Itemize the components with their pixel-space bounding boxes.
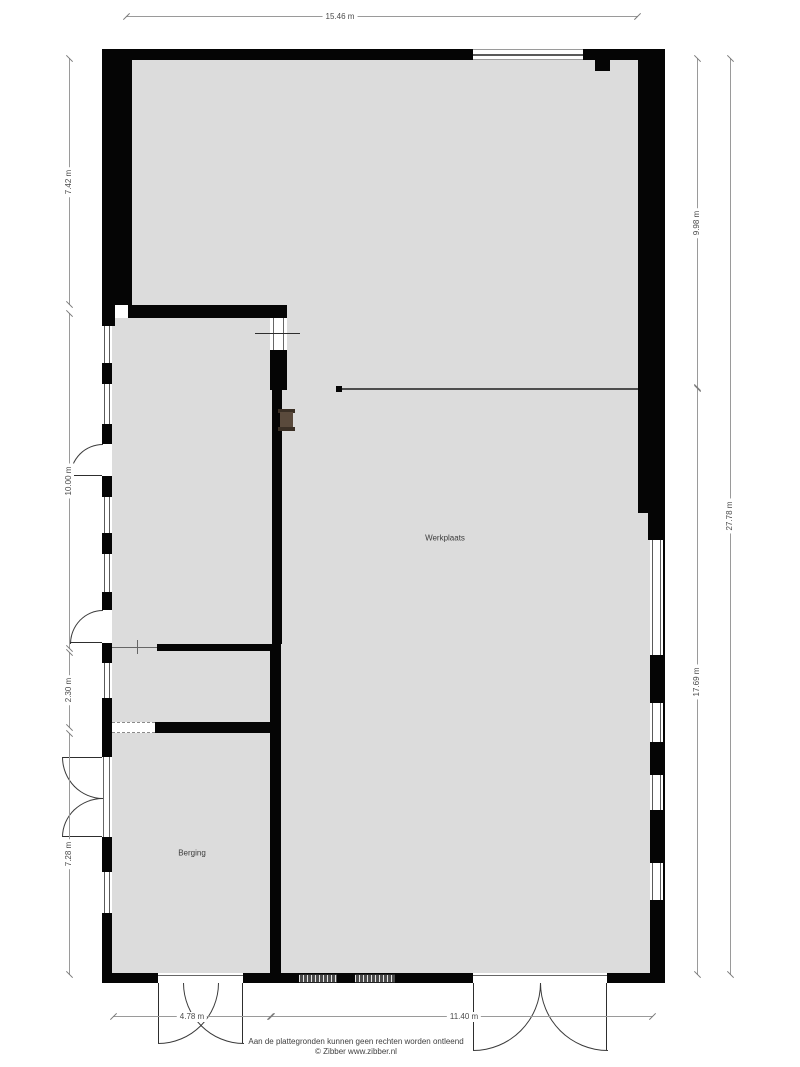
dimension-label-left-2: 10.00 m <box>64 464 74 499</box>
window-left-3 <box>102 497 112 533</box>
door-threshold-werkplaats <box>473 975 607 976</box>
wall-divider-lower <box>270 644 281 973</box>
window-left-4 <box>102 554 112 592</box>
door-leaf-left-1 <box>70 475 102 476</box>
wall-right-step <box>648 513 665 540</box>
window-left-2 <box>102 384 112 424</box>
wall-top-notch <box>595 60 610 71</box>
door-arc-left-1 <box>70 444 103 477</box>
wall-corridor-north <box>157 644 272 651</box>
dimension-label-left-1: 7.42 m <box>64 167 74 197</box>
dimension-label-bottom-2: 11.40 m <box>447 1012 481 1022</box>
door-gap-left-1 <box>102 444 112 476</box>
dimension-label-bottom-1: 4.78 m <box>177 1012 207 1022</box>
dimension-label-right-3: 27.78 m <box>725 499 735 534</box>
footer-line-2: © Zibber www.zibber.nl <box>248 1047 463 1057</box>
dimension-label-right-1: 9.98 m <box>692 208 702 238</box>
door-frame-left-double-b <box>109 757 110 837</box>
dimension-label-top: 15.46 m <box>323 12 358 22</box>
door-arc-bottom-werkplaats-l <box>473 983 541 1051</box>
window-right-2 <box>650 703 663 742</box>
door-leaf-left-2 <box>70 642 102 643</box>
opening-dashed-berging <box>112 722 155 733</box>
footer-line-1: Aan de plattegronden kunnen geen rechten… <box>248 1037 463 1047</box>
door-arc-left-2 <box>70 610 103 644</box>
wall-corridor-south <box>155 722 272 733</box>
dimension-label-left-4: 7.28 m <box>64 839 74 869</box>
opening-line-corridor <box>112 647 157 648</box>
door-frame-divider-b <box>283 318 284 350</box>
footer-disclaimer: Aan de plattegronden kunnen geen rechten… <box>248 1037 463 1058</box>
window-left-1 <box>102 326 112 363</box>
floor-area <box>112 60 650 973</box>
room-label-berging: Berging <box>178 849 206 858</box>
dimension-line-top <box>126 16 638 17</box>
wall-left-thick <box>102 49 132 305</box>
door-arc-bottom-werkplaats-r <box>540 983 608 1051</box>
window-right-3 <box>650 775 663 810</box>
opening-tick-corridor <box>137 640 138 654</box>
door-frame-divider-a <box>273 318 274 350</box>
dimension-label-right-2: 17.69 m <box>692 665 702 700</box>
beam-end-block <box>336 386 342 392</box>
door-threshold-berging <box>158 975 243 976</box>
wall-divider-upper <box>270 350 287 390</box>
vent-bottom-1 <box>299 974 337 983</box>
window-right-1 <box>650 540 663 655</box>
door-gap-left-2 <box>102 610 112 643</box>
window-right-4 <box>650 863 663 900</box>
window-top <box>473 49 583 60</box>
floorplan-page: Werkplaats Berging 15.46 m 7.42 m 10.00 … <box>0 0 800 1067</box>
window-left-5 <box>102 663 112 698</box>
room-label-werkplaats: Werkplaats <box>425 534 465 543</box>
door-line-divider <box>255 333 300 334</box>
wall-object-flange-bottom <box>278 427 295 431</box>
wall-divider-top <box>128 305 287 318</box>
wall-object-body <box>280 412 293 428</box>
window-left-6 <box>102 872 112 913</box>
corner-gap <box>115 305 128 318</box>
wall-left-corner <box>102 305 115 326</box>
wall-right-upper <box>638 49 665 513</box>
dimension-label-left-3: 2.30 m <box>64 675 74 705</box>
door-frame-left-double-a <box>103 757 104 837</box>
beam-line <box>336 388 638 390</box>
vent-bottom-2 <box>355 974 395 983</box>
